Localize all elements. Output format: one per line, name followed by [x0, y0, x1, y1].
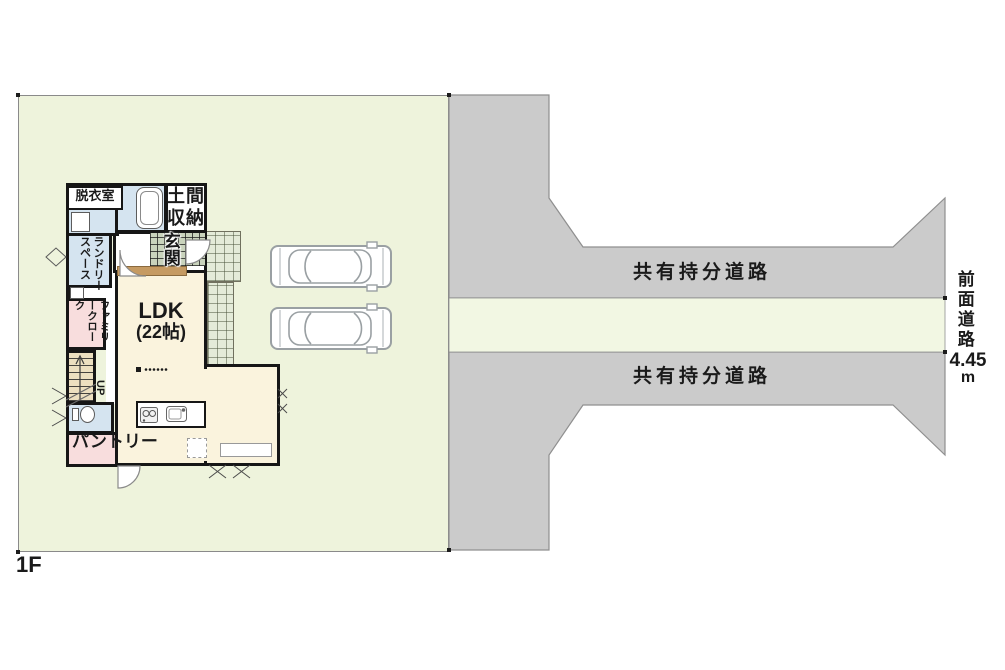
stairs-up-label: UP — [94, 380, 106, 404]
floor-plan-page: 脱衣室 土間収納 玄関 ランドリースペース ファミリークローク UP LDK (… — [0, 0, 1005, 670]
furniture-square — [187, 438, 207, 458]
bathtub-inner — [140, 191, 159, 225]
toilet-bowl-icon — [80, 406, 95, 423]
floor-label: 1F — [16, 553, 42, 577]
entrance-porch-tiles — [205, 231, 241, 282]
ldk-size-label: (22帖) — [117, 323, 205, 343]
dressing-room-label: 脱衣室 — [67, 186, 123, 210]
ldk-label: LDK — [117, 299, 205, 323]
front-road-label: 前面道路 — [954, 270, 973, 358]
shared-road-top-label: 共有持分道路 — [622, 263, 782, 284]
entrance-label: 玄関 — [160, 232, 179, 276]
room-stairs — [66, 350, 96, 404]
kitchen-counter — [136, 401, 206, 428]
bathtub-icon — [136, 187, 163, 229]
shared-road-bottom-label: 共有持分道路 — [622, 367, 782, 388]
family-closet-label: ファミリークローク — [73, 300, 111, 352]
laundry-space-label: ランドリースペース — [77, 236, 104, 294]
approach-path-tiles — [207, 282, 234, 368]
front-road-width-unit: m — [944, 369, 992, 387]
pantry-label: パントリー — [72, 433, 158, 452]
front-road-band — [449, 298, 945, 352]
toilet-tank-icon — [72, 408, 79, 421]
tv-board — [220, 443, 272, 457]
washing-machine-icon — [71, 212, 90, 232]
doma-storage-label: 土間収納 — [166, 185, 206, 229]
